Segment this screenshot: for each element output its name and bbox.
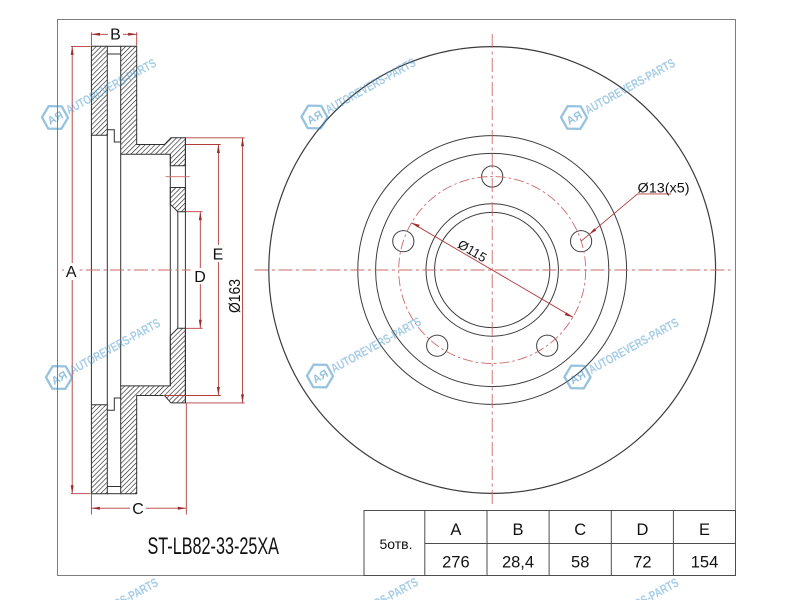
svg-text:C: C [132, 501, 144, 518]
svg-text:E: E [699, 521, 710, 539]
svg-text:28,4: 28,4 [502, 554, 534, 572]
svg-text:72: 72 [633, 554, 651, 572]
svg-text:154: 154 [691, 554, 719, 572]
svg-text:C: C [574, 521, 586, 539]
svg-text:Ø163: Ø163 [227, 279, 244, 313]
svg-text:276: 276 [442, 554, 470, 572]
svg-text:B: B [110, 26, 121, 43]
svg-text:Ø13(x5): Ø13(x5) [638, 180, 690, 196]
svg-text:A: A [66, 264, 77, 281]
svg-text:ST-LB82-33-25XA: ST-LB82-33-25XA [148, 533, 280, 560]
svg-text:D: D [194, 269, 206, 286]
svg-text:5отв.: 5отв. [379, 536, 412, 552]
svg-text:D: D [636, 521, 648, 539]
svg-text:A: A [450, 521, 461, 539]
svg-text:B: B [512, 521, 523, 539]
svg-text:E: E [213, 246, 224, 263]
svg-text:58: 58 [571, 554, 589, 572]
